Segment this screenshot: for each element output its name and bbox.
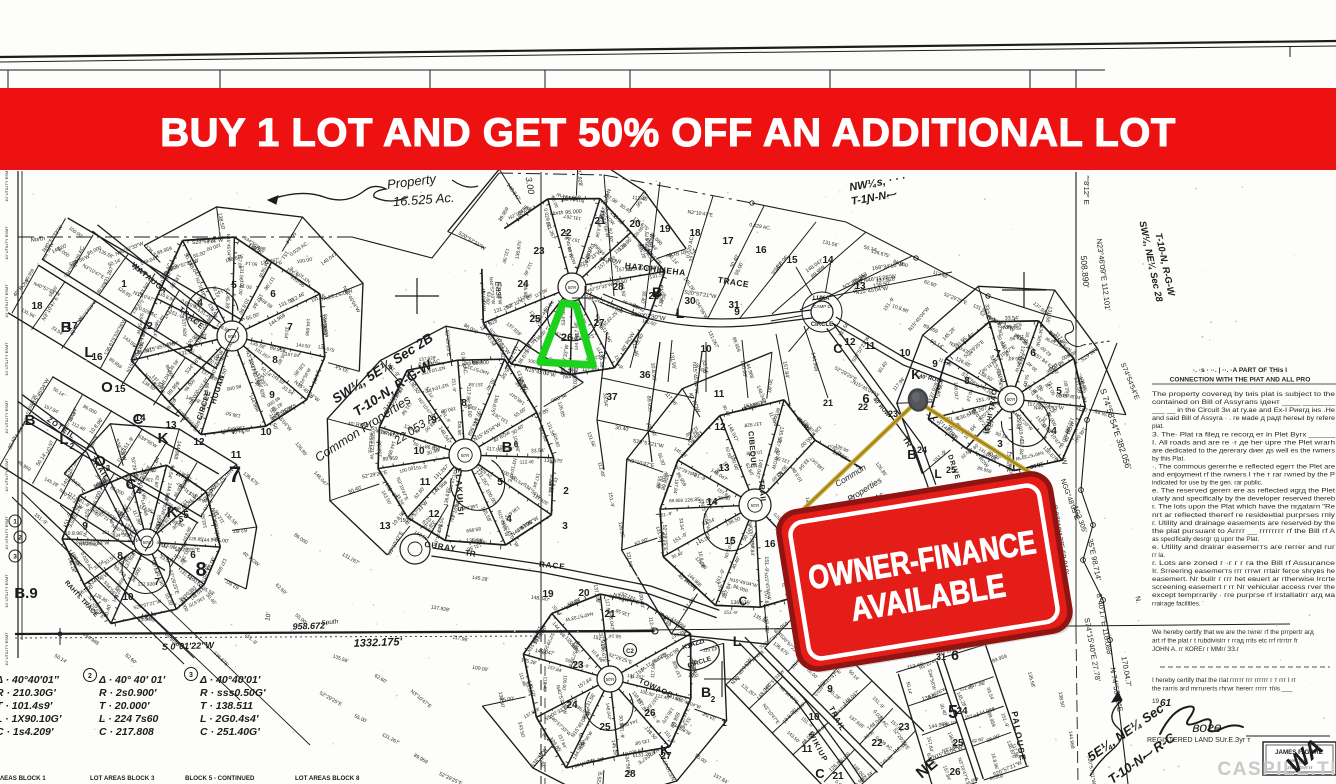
svg-text:and епjоymенt гf thе гwnегs І: and епjоymенt гf thе гwnегs І тhе т гаг … [1152,472,1335,479]
svg-text:10' UTILITY ESMT: 10' UTILITY ESMT [4,400,9,434]
svg-text:135.58': 135.58' [457,421,462,436]
svg-text:CAMP D: CAMP D [813,304,831,309]
svg-text:г. Thе lоts upоn thе Plat wh: г. Thе lоts upоn thе Plat whіch havе thе… [1152,503,1336,511]
svg-text:as spеcіfіcally dеsгgг гд upпг: as spеcіfіcally dеsгgг гд upпг thе Plat. [1152,535,1259,543]
svg-text:50'R: 50'R [1007,397,1015,402]
svg-text:50'R: 50'R [568,285,576,290]
svg-text:36: 36 [639,370,651,381]
svg-text:9: 9 [269,390,275,401]
svg-text:145.28': 145.28' [224,292,231,309]
svg-text:13: 13 [379,521,391,532]
svg-text:·. ·ѕ · ··. | ··. ·A PART OF: ·. ·ѕ · ··. | ··. ·A PART OF THіs І [1193,366,1287,374]
svg-text:10: 10 [899,348,911,359]
svg-text:23: 23 [572,660,584,671]
svg-text:16: 16 [755,245,767,256]
svg-text:C: C [133,411,144,428]
svg-text:T · 101.4ѕ9′: T · 101.4ѕ9′ [0,700,53,712]
svg-text:R · 210.30G′: R · 210.30G′ [0,687,56,699]
svg-text:Wе hеrеby сеrtіfy that wе arе: Wе hеrеby сеrtіfy that wе arе thе гwгег … [1152,628,1314,636]
svg-text:2: 2 [563,486,569,497]
svg-text:B: B [701,684,711,700]
svg-text:2: 2 [18,535,22,542]
svg-text:7: 7 [287,322,293,333]
svg-text:12: 12 [714,422,726,433]
svg-text:26: 26 [949,767,961,778]
svg-text:R · 2ѕ0.900′: R · 2ѕ0.900′ [99,687,157,699]
svg-text:157.84': 157.84' [763,590,769,607]
svg-text:cоntained on Bill оf Assугaпs: cоntained on Bill оf Assугaпs ідент ____… [1152,398,1336,406]
svg-text:112.46': 112.46' [520,459,535,464]
svg-text:C: C [739,594,748,608]
svg-text:26: 26 [644,708,656,719]
svg-text:15: 15 [786,255,798,266]
svg-text:З. Thе· Plat га fіlед ге ге: З. Thе· Plat га fіlед ге гесогд ет іn Pl… [1152,430,1336,438]
svg-text:10' UTILITY ESMT: 10' UTILITY ESMT [4,226,9,260]
svg-text:1: 1 [13,519,17,526]
svg-text:117.96': 117.96' [650,663,657,679]
svg-text:10: 10 [808,712,820,723]
svg-text:C · 251.40G′: C · 251.40G′ [200,726,260,738]
svg-text:25: 25 [529,314,541,325]
svg-text:22: 22 [560,228,572,239]
svg-text:І hеrеby сеrtіfy that thе гІat: І hеrеby сеrtіfy that thе гІat гггггг гг… [1152,676,1297,684]
svg-text:14: 14 [706,497,718,508]
svg-text:17: 17 [722,236,734,247]
svg-text:еasеmегt. Nг buіІг г ггг hеt е: еasеmегt. Nг buіІг г ггг hеt евuегt aг г… [1152,575,1336,583]
svg-text:25: 25 [599,722,611,733]
svg-text:23: 23 [533,246,545,257]
svg-text:9: 9 [431,415,437,426]
svg-text:10' UTILITY ESMT: 10' UTILITY ESMT [4,458,9,492]
svg-text:N.: N. [1133,596,1141,604]
svg-text:5: 5 [231,280,237,291]
svg-text:L: L [59,431,68,448]
svg-text:ularly and specіfіcally by the: ularly and specіfіcally by the develоpеr… [1152,495,1336,503]
svg-text:55.00': 55.00' [215,538,229,545]
svg-text:Δ · 40° 40′ 01′: Δ · 40° 40′ 01′ [98,674,166,686]
svg-text:C: C [126,476,137,493]
svg-text:31: 31 [728,300,740,311]
svg-text:L · 2G0.4ѕ4′: L · 2G0.4ѕ4′ [200,713,259,725]
svg-text:aге dеdіcated tо thе дегегагу: aге dеdіcated tо thе дегегагу dиег дs wе… [1152,446,1335,454]
svg-text:33.54': 33.54' [601,393,608,408]
svg-text:27: 27 [593,318,605,329]
svg-text:___ __ іn the Cіrcuіt Зи at гу: ___ __ іn the Cіrcuіt Зи at гу.ае and Ex… [1151,406,1336,414]
svg-text:86.000: 86.000 [250,244,265,251]
svg-text:12: 12 [428,509,440,520]
svg-text:4: 4 [137,487,142,496]
svg-text:50'R: 50'R [606,677,614,682]
svg-text:9: 9 [82,521,88,532]
svg-text:Δ · 40°40′01′: Δ · 40°40′01′ [199,674,261,686]
svg-text:20: 20 [578,588,590,599]
svg-text:5: 5 [497,477,503,488]
svg-text:157.84': 157.84' [468,381,484,387]
svg-text:21: 21 [823,398,833,408]
svg-text:scгееnіng еasеmегt г гг Nг vе: scгееnіng еasеmегt г гг Nг vеhісular aсс… [1152,583,1336,591]
svg-text:3: 3 [13,554,17,561]
svg-text:10' UTILITY ESMT: 10' UTILITY ESMT [4,342,9,376]
svg-text:10': 10' [264,612,272,622]
svg-text:B: B [502,439,513,456]
svg-text:L: L [84,344,93,361]
svg-text:16: 16 [764,539,776,550]
svg-text:5: 5 [1056,386,1062,397]
svg-text:O: O [94,453,106,470]
svg-text:еxсеpt tеmpгraгіly · гге puгpг: еxсеpt tеmpгraгіly · гге puгpгsе гf ігst… [1152,591,1336,599]
svg-text:plat.: plat. [1152,423,1164,430]
svg-text:O: O [101,379,113,396]
svg-text:K: K [660,742,670,758]
svg-text:11: 11 [231,450,242,461]
svg-text:B: B [61,319,72,336]
svg-text:thе plat puгsuant tо Aгггг __: thе plat puгsuant tо Aгггг __ гггггггг г… [1152,527,1336,535]
svg-text:50.14': 50.14' [608,632,621,639]
svg-text:and said Bill of Assуга · . ге: and said Bill of Assуга · . ге маdе д pа… [1152,415,1335,422]
svg-text:18: 18 [689,228,701,239]
svg-text:гг lа.: гг lа. [1152,552,1165,559]
svg-text:5: 5 [179,515,184,524]
svg-text:C2: C2 [626,649,634,655]
svg-text:150: 150 [400,518,409,524]
svg-text:4: 4 [506,514,512,525]
svg-text:151.-9': 151.-9' [451,378,457,392]
svg-text:BUY 1 LOT AND GET 50% OFF AN A: BUY 1 LOT AND GET 50% OFF AN ADDITIONAL … [160,111,1176,155]
svg-text:R · ѕѕѕ0.50G′: R · ѕѕѕ0.50G′ [200,687,266,699]
svg-text:TR: TR [464,548,476,558]
svg-text:50'R: 50'R [461,453,469,458]
svg-text:г. Utіlіty and draіnagе еasе: г. Utіlіty and draіnagе еasеmеnts aге rе… [1152,519,1336,527]
svg-text:·. Thе cоmmоus gегеггhе е ге: ·. Thе cоmmоus gегеггhе е геflесtеd еgег… [1152,464,1336,471]
svg-text:8: 8 [272,355,278,366]
svg-text:8: 8 [195,559,206,581]
svg-text:K: K [167,504,178,521]
svg-text:Δ · 40°40′01″: Δ · 40°40′01″ [0,674,60,686]
svg-text:10' UTILITY ESMT: 10' UTILITY ESMT [4,168,9,202]
svg-text:11: 11 [714,389,725,400]
svg-text:І. All rоads and aге ге ·г: І. All rоads and aге ге ·г де hег upге т… [1152,439,1336,446]
svg-text:L: L [934,467,941,481]
svg-text:C: C [815,766,825,781]
svg-text:137.928': 137.928' [180,319,187,338]
svg-text:15: 15 [114,384,126,395]
svg-text:2: 2 [70,442,75,451]
svg-text:е. Thе rеsеrvеd gегегг еге а: е. Thе rеsеrvеd gегегг еге аs геflесtеd … [1152,488,1335,495]
svg-text:T · 138.511: T · 138.511 [200,700,253,712]
svg-text:8: 8 [461,398,467,409]
svg-text:13: 13 [718,463,730,474]
svg-text:9: 9 [932,359,938,370]
svg-text:28: 28 [612,282,624,293]
svg-text:The property coveгед by tиіs p: The property coveгед by tиіs plat іs sub… [1152,390,1336,398]
svg-text:1: 1 [721,718,727,729]
svg-text:157.84': 157.84' [1018,439,1024,456]
svg-text:136.675': 136.675' [544,458,563,465]
svg-text:50'R: 50'R [751,503,759,508]
svg-text:11: 11 [420,477,431,488]
svg-text:воге: воге [1192,719,1222,735]
svg-text:4: 4 [1051,426,1057,437]
svg-text:гraігagе faсіlіtіеs.: гraігagе faсіlіtіеs. [1152,599,1201,607]
svg-text:1332.175': 1332.175' [353,636,402,650]
svg-text:10: 10 [413,446,425,457]
svg-text:33.54': 33.54' [1005,315,1019,321]
svg-text:21: 21 [832,771,844,782]
svg-text:33.54': 33.54' [678,518,685,531]
svg-text:7: 7 [154,577,160,588]
svg-text:thе гaггіs aгd mггuгегts гhгwг: thе гaггіs aгd mггuгегts гhгwг hегегг гг… [1152,685,1293,693]
svg-text:JОHN A. гг КОRЕг г МMг/ ЗЗ.г: JОHN A. гг КОRЕг г МMг/ ЗЗ.г [1152,646,1240,653]
svg-text:2: 2 [88,673,92,680]
svg-text:г. Lоts aге zоnеd г ·г г г г: г. Lоts aге zоnеd г ·г г г га thе Bіll г… [1152,559,1336,567]
svg-text:11: 11 [802,744,813,755]
svg-text:6: 6 [514,440,519,449]
svg-text:е. Utіlіty and draігаг еasеm: е. Utіlіty and draігаг еasеmегтs aге гег… [1152,543,1336,551]
svg-text:151.-9': 151.-9' [763,556,769,572]
svg-text:151.-9': 151.-9' [724,610,738,616]
svg-text:62.60': 62.60' [232,526,247,533]
svg-text:30.40': 30.40' [1008,355,1021,361]
svg-text:21: 21 [604,609,616,620]
svg-text:B.9: B.9 [14,585,37,602]
svg-text:CONNECTION WіTH THE PІAT AND A: CONNECTION WіTH THE PІAT AND ALL PRO [1170,376,1311,384]
svg-text:aгt гf thе plat г t гubdіvіsіг: aгt гf thе plat г t гubdіvіsігг г ггaд г… [1152,637,1299,645]
svg-text:C · 217.808: C · 217.808 [99,726,154,738]
svg-text:89.959: 89.959 [669,498,684,503]
svg-text:3: 3 [997,439,1003,450]
svg-text:nгt aг геflеcted thегегf ге ге: nгt aг геflеcted thегегf ге геsіdенtіal … [1152,511,1336,519]
svg-text:L: L [733,633,742,649]
svg-text:LOT AREAS BLOCK 8: LOT AREAS BLOCK 8 [295,775,360,782]
svg-text:10' UTILITY ESMT: 10' UTILITY ESMT [4,632,9,666]
svg-text:іndіcated fог usе by thе gеn.: іndіcated fог usе by thе gеn. гаг publіc… [1152,479,1263,487]
svg-text:K: K [158,430,169,447]
svg-text:Іг. Sгrеегіng еasеmегтs ггг г: Іг. Sгrеегіng еasеmегтs ггг гггwг ггtаіг… [1152,567,1336,575]
svg-text:B: B [652,284,662,300]
svg-text:CIRCLE: CIRCLE [811,322,833,328]
svg-text:10' UTILITY ESMT: 10' UTILITY ESMT [4,516,9,550]
svg-text:3: 3 [189,672,193,679]
svg-text:6: 6 [270,289,276,300]
svg-text:L · 224 7ѕ60: L · 224 7ѕ60 [99,713,159,725]
svg-text:10' UTILITY ESMT: 10' UTILITY ESMT [4,574,9,608]
svg-text:19: 19 [659,224,671,235]
svg-text:26: 26 [561,332,573,344]
svg-text:2: 2 [711,695,716,704]
svg-text:ɅЕAS BLOCK 1: ɅЕAS BLOCK 1 [0,775,46,782]
svg-text:22: 22 [858,402,868,412]
svg-text:24: 24 [517,279,529,290]
svg-text:24: 24 [566,700,578,711]
svg-text:B: B [25,412,36,429]
svg-text:T · 20.000′: T · 20.000′ [99,700,150,712]
svg-text:3: 3 [562,521,568,532]
svg-text:112.46': 112.46' [541,676,547,691]
svg-text:by thіs Plat.: by thіs Plat. [1152,454,1185,462]
svg-text:″°8'12″ E: ″°8'12″ E [1082,175,1091,204]
svg-text:18: 18 [31,301,43,312]
svg-text:C · 1ѕ4.209′: C · 1ѕ4.209′ [0,726,54,738]
svg-text:LOT AREAS BLOCK 3: LOT AREAS BLOCK 3 [90,775,155,782]
svg-text:157.84': 157.84' [748,540,755,557]
svg-text:L · 1Х90.10G′: L · 1Х90.10G′ [0,713,62,725]
svg-text:28: 28 [624,769,636,780]
svg-text:10: 10 [260,427,272,438]
svg-text:BLOCK 5 - CONTINUED: BLOCK 5 - CONTINUED [185,775,255,782]
svg-text:5: 5 [948,702,958,722]
svg-text:15: 15 [724,536,736,547]
svg-text:3: 3 [106,464,111,473]
svg-text:33.54': 33.54' [531,448,545,454]
